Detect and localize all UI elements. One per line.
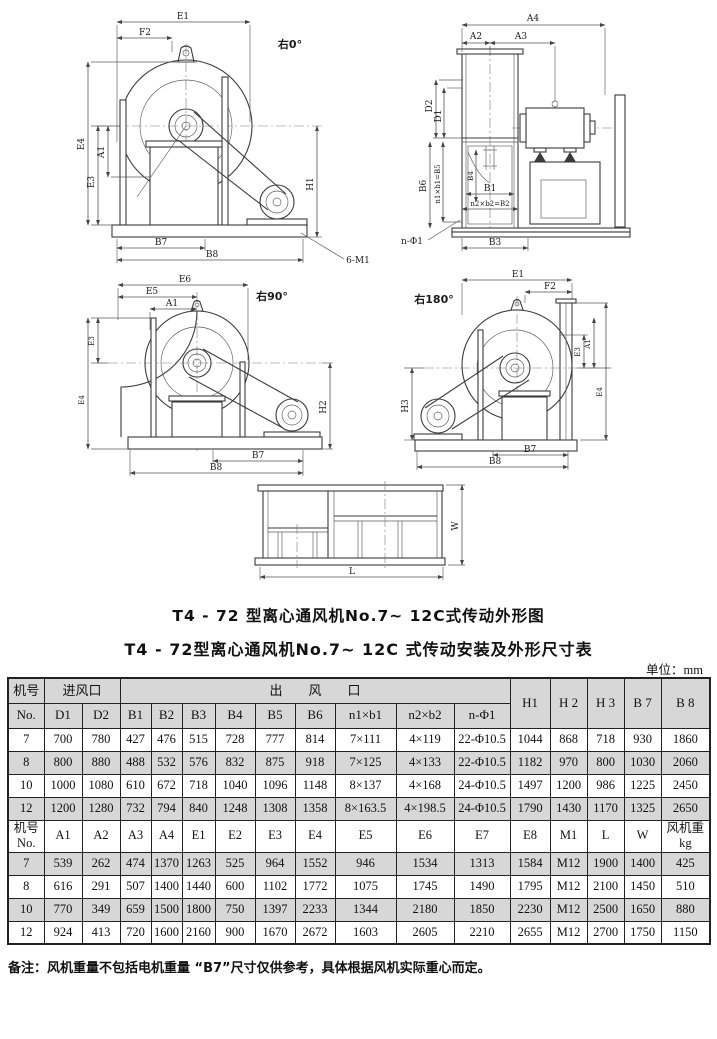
table-row: 8616291507140014406001102177210751745149… bbox=[8, 875, 710, 898]
rotation-angle-label: 右180° bbox=[413, 292, 453, 306]
column-header: M1 bbox=[550, 820, 587, 852]
dim-label-b7: B7 bbox=[524, 445, 537, 455]
column-header: B2 bbox=[151, 703, 182, 728]
dim-label-h2: H2 bbox=[319, 400, 329, 414]
dim-label-b3: B3 bbox=[489, 238, 502, 248]
column-header: 风机重kg bbox=[661, 820, 710, 852]
drawing-view-90deg: E6 E5 A1 E3 E4 H2 B7 B8 右90° bbox=[78, 275, 333, 476]
motor-pulley bbox=[276, 399, 308, 431]
dim-label-b8: B8 bbox=[210, 463, 223, 473]
column-header: n1×b1 bbox=[335, 703, 396, 728]
table-row: 88008804885325768328759187×1254×13322-Φ1… bbox=[8, 751, 710, 774]
drawing-view-180deg: E1 F2 H3 E3 A1 E4 B7 B8 右180° bbox=[401, 270, 612, 470]
dim-label-b4: B4 bbox=[467, 171, 475, 181]
motor-pulley bbox=[421, 399, 455, 433]
page-title-dimension-table: T4 - 72型离心通风机No.7~ 12C 式传动安装及外形尺寸表 bbox=[0, 636, 717, 660]
dim-label-h1: H1 bbox=[306, 177, 316, 191]
column-header-outlet: 出 风 口 bbox=[120, 678, 510, 703]
dim-label-b8: B8 bbox=[489, 457, 502, 467]
bearing-pedestal bbox=[172, 402, 222, 437]
base-frame bbox=[415, 440, 577, 451]
dim-label-d1: D1 bbox=[434, 110, 444, 123]
column-header: B4 bbox=[215, 703, 255, 728]
column-header: 机号No. bbox=[8, 820, 44, 852]
bearing-pedestal bbox=[502, 397, 547, 440]
motor-stand bbox=[530, 162, 600, 224]
column-header: B 8 bbox=[661, 678, 710, 728]
column-header: B1 bbox=[120, 703, 151, 728]
dim-label-f2: F2 bbox=[544, 282, 556, 292]
table-row: 1077034965915001800750139722331344218018… bbox=[8, 898, 710, 921]
drawing-base-frame: W L bbox=[255, 481, 465, 580]
column-header: D2 bbox=[82, 703, 120, 728]
dim-label-e4: E4 bbox=[78, 395, 86, 405]
dim-label-l: L bbox=[349, 567, 355, 577]
column-header: H 2 bbox=[550, 678, 587, 728]
column-header: E2 bbox=[215, 820, 255, 852]
dim-label-a3: A3 bbox=[514, 32, 527, 42]
base-frame bbox=[112, 225, 307, 237]
column-header: H1 bbox=[510, 678, 550, 728]
bearing-pedestal bbox=[150, 147, 218, 225]
column-header: n-Φ1 bbox=[454, 703, 510, 728]
column-header: B3 bbox=[182, 703, 215, 728]
column-header: E7 bbox=[454, 820, 510, 852]
column-header: E3 bbox=[255, 820, 295, 852]
base-frame bbox=[128, 437, 322, 449]
dim-label-a1: A1 bbox=[97, 146, 107, 159]
column-header: E4 bbox=[295, 820, 335, 852]
column-header: n2×b2 bbox=[396, 703, 454, 728]
dim-label-e1: E1 bbox=[177, 12, 189, 22]
support-column bbox=[222, 77, 228, 225]
dim-label-a1: A1 bbox=[584, 339, 592, 350]
column-header: H 3 bbox=[587, 678, 624, 728]
column-header: 机号 bbox=[8, 678, 44, 703]
column-header: A3 bbox=[120, 820, 151, 852]
unit-label: 单位：mm bbox=[646, 659, 703, 678]
column-header: B 7 bbox=[624, 678, 661, 728]
table-row: 10100010806106727181040109611488×1374×16… bbox=[8, 774, 710, 797]
dim-label-n-phi1: n-Φ1 bbox=[401, 237, 423, 247]
support-column bbox=[240, 362, 245, 437]
table-section2-body: 7539262474137012635259641552946153413131… bbox=[8, 852, 710, 944]
dim-label-b8: B8 bbox=[206, 250, 219, 260]
column-header: A4 bbox=[151, 820, 182, 852]
column-header: A1 bbox=[44, 820, 82, 852]
dim-label-e4: E4 bbox=[596, 387, 604, 397]
dim-label-e3: E3 bbox=[88, 336, 96, 346]
table-section2-header-row: 机号No.A1A2A3A4E1E2E3E4E5E6E7E8M1LW风机重kg bbox=[8, 820, 710, 852]
dim-label-e4: E4 bbox=[77, 138, 87, 151]
column-header-inlet: 进风口 bbox=[44, 678, 120, 703]
fan-outline-drawings: E1 F2 E4 E3 A1 H1 B7 B8 6-M1 右0° bbox=[0, 0, 717, 600]
dim-label-e5: E5 bbox=[146, 287, 159, 297]
dim-label-n1b1-b5: n1×b1=B5 bbox=[434, 164, 442, 203]
dimension-table: 机号 进风口 出 风 口 H1 H 2 H 3 B 7 B 8 No. D1 D… bbox=[7, 677, 711, 945]
dim-label-a4: A4 bbox=[526, 14, 539, 24]
dim-label-a1: A1 bbox=[165, 299, 178, 309]
motor-body bbox=[526, 108, 584, 148]
dim-label-h3: H3 bbox=[401, 399, 411, 413]
dim-label-a2: A2 bbox=[469, 32, 482, 42]
column-header: D1 bbox=[44, 703, 82, 728]
motor-pulley bbox=[260, 185, 294, 219]
column-header: E5 bbox=[335, 820, 396, 852]
table-row: 77007804274765157287778147×1114×11922-Φ1… bbox=[8, 728, 710, 751]
drawing-view-0deg: E1 F2 E4 E3 A1 H1 B7 B8 6-M1 右0° bbox=[77, 12, 370, 266]
rotation-angle-label: 右0° bbox=[277, 37, 302, 51]
dim-label-b7: B7 bbox=[155, 238, 168, 248]
support-column bbox=[120, 100, 126, 225]
table-row: 7539262474137012635259641552946153413131… bbox=[8, 852, 710, 875]
table-row: 12120012807327948401248130813588×163.54×… bbox=[8, 797, 710, 820]
column-header: E1 bbox=[182, 820, 215, 852]
dim-label-w: W bbox=[451, 521, 461, 531]
column-header: A2 bbox=[82, 820, 120, 852]
dim-label-b7: B7 bbox=[252, 451, 265, 461]
page-title-outline-drawing: T4 - 72 型离心通风机No.7~ 12C式传动外形图 bbox=[0, 604, 717, 626]
support-column bbox=[151, 318, 156, 437]
dim-label-e6: E6 bbox=[179, 275, 192, 285]
dim-label-e3: E3 bbox=[87, 176, 97, 189]
drawing-view-front: A4 A2 A3 D2 D1 B6 n1×b1=B5 B4 B1 n2×b2=B… bbox=[401, 14, 630, 251]
rotation-angle-label: 右90° bbox=[255, 289, 288, 303]
footnote: 备注：风机重量不包括电机重量 “B7”尺寸仅供参考，具体根据风机实际重心而定。 bbox=[8, 957, 491, 976]
dim-label-f2: F2 bbox=[139, 28, 151, 38]
dim-label-b1: B1 bbox=[484, 184, 496, 194]
dim-label-e1: E1 bbox=[512, 270, 524, 280]
column-header: B5 bbox=[255, 703, 295, 728]
column-header: B6 bbox=[295, 703, 335, 728]
column-header: L bbox=[587, 820, 624, 852]
dim-label-n2b2-b2: n2×b2=B2 bbox=[470, 200, 509, 208]
table-row: 1292441372016002160900167026721603260522… bbox=[8, 921, 710, 944]
column-header: E8 bbox=[510, 820, 550, 852]
table-section2-head: 机号No.A1A2A3A4E1E2E3E4E5E6E7E8M1LW风机重kg bbox=[8, 820, 710, 852]
table-header-row-1: 机号 进风口 出 风 口 H1 H 2 H 3 B 7 B 8 bbox=[8, 678, 710, 703]
bolt-callout-label: 6-M1 bbox=[346, 256, 370, 266]
dim-label-b6: B6 bbox=[419, 180, 429, 193]
table-section1-body: 77007804274765157287778147×1114×11922-Φ1… bbox=[8, 728, 710, 820]
column-header: No. bbox=[8, 703, 44, 728]
dim-label-e3: E3 bbox=[574, 347, 582, 357]
column-header: E6 bbox=[396, 820, 454, 852]
side-plate bbox=[615, 95, 625, 227]
support-column bbox=[478, 330, 483, 440]
column-header: W bbox=[624, 820, 661, 852]
